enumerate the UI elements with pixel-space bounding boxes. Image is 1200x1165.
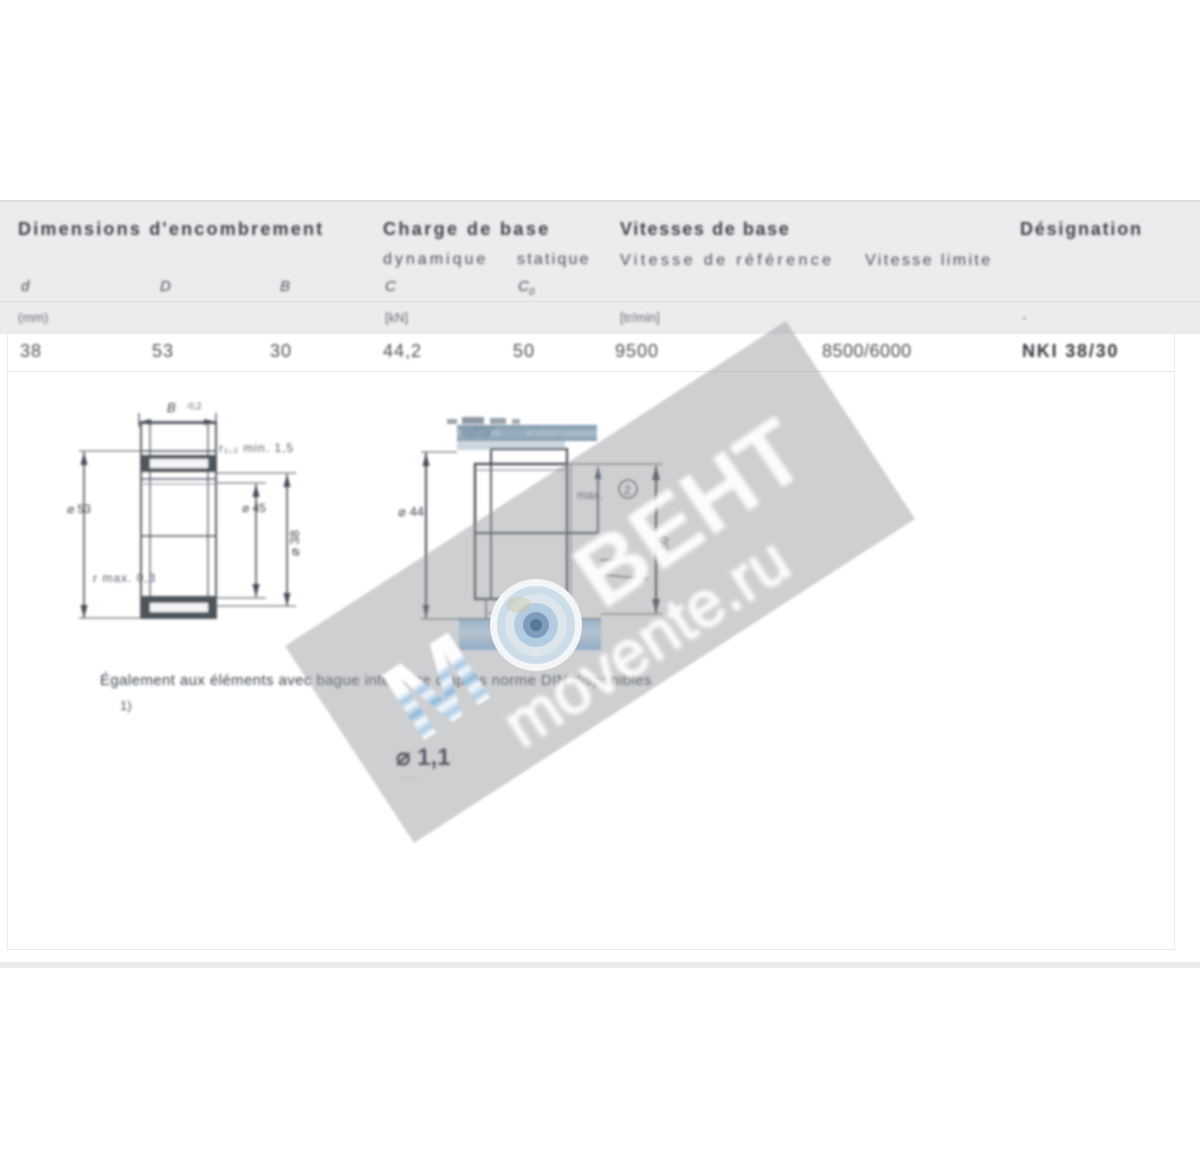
svg-text:r max. 0,3: r max. 0,3 — [93, 571, 156, 585]
svg-text:⌀ 38: ⌀ 38 — [287, 530, 302, 556]
svg-text:r₁,₂ min. 1,5: r₁,₂ min. 1,5 — [219, 441, 294, 455]
svg-text:⌀ 45: ⌀ 45 — [242, 501, 266, 515]
svg-text:⌀ 53: ⌀ 53 — [67, 502, 91, 516]
svg-text:⌀ 44: ⌀ 44 — [398, 504, 424, 519]
svg-text:-0,2: -0,2 — [186, 401, 202, 411]
svg-text:B: B — [167, 400, 176, 415]
svg-text:1): 1) — [120, 698, 132, 713]
